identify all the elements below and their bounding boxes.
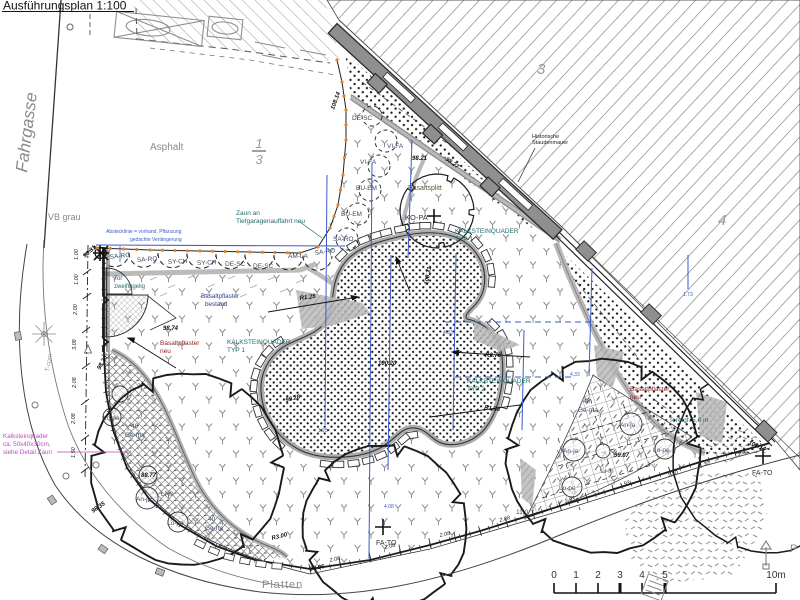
svg-text:SA-RO: SA-RO	[333, 236, 354, 243]
svg-text:4: 4	[718, 212, 726, 229]
svg-text:neu: neu	[160, 348, 171, 355]
svg-text:1.50: 1.50	[71, 446, 77, 458]
svg-text:zweiflügelig: zweiflügelig	[114, 284, 145, 290]
svg-text:TYP 2: TYP 2	[467, 386, 485, 393]
svg-text:ca. 50x40x30cm,: ca. 50x40x30cm,	[3, 441, 51, 448]
svg-text:BU-EM: BU-EM	[341, 211, 362, 218]
svg-text:VI-FA: VI-FA	[387, 143, 404, 150]
svg-text:Basaltpflaster: Basaltpflaster	[201, 293, 239, 300]
svg-text:KALKSTEINQUADER: KALKSTEINQUADER	[467, 378, 531, 385]
svg-text:Li-m: Li-m	[161, 491, 174, 498]
svg-text:2.08: 2.08	[72, 376, 78, 389]
svg-text:neu: neu	[630, 394, 641, 401]
svg-text:An-ja: An-ja	[136, 496, 152, 503]
svg-text:1.00: 1.00	[74, 248, 80, 260]
svg-text:5: 5	[662, 570, 668, 581]
svg-text:1.00: 1.00	[74, 273, 80, 285]
svg-text:VB grau: VB grau	[48, 212, 81, 222]
svg-text:Toreinf. 5,0 m: Toreinf. 5,0 m	[669, 417, 708, 424]
svg-text:0: 0	[551, 570, 557, 581]
svg-text:Ge-ma: Ge-ma	[578, 407, 598, 414]
svg-text:1: 1	[573, 570, 579, 581]
svg-text:1.73: 1.73	[683, 292, 693, 298]
svg-text:Basaltpflaster: Basaltpflaster	[630, 386, 670, 393]
svg-text:KALKSTEINQUADER: KALKSTEINQUADER	[455, 228, 519, 235]
svg-text:Zaun an: Zaun an	[236, 210, 260, 217]
svg-text:gedachte Verlängerung: gedachte Verlängerung	[130, 237, 182, 243]
svg-text:An-ja: An-ja	[563, 448, 579, 455]
svg-text:4: 4	[639, 570, 645, 581]
svg-text:98,74: 98,74	[163, 326, 179, 332]
svg-text:VI-FA: VI-FA	[360, 159, 377, 166]
svg-text:An-ja: An-ja	[620, 422, 636, 429]
svg-text:99.87: 99.87	[614, 453, 630, 459]
svg-text:TYP 1: TYP 1	[455, 236, 473, 243]
svg-text:BU-EM: BU-EM	[356, 185, 377, 192]
svg-text:Tiefgaragenauffahrt neu: Tiefgaragenauffahrt neu	[236, 218, 305, 225]
svg-text:4.33: 4.33	[570, 372, 580, 378]
svg-text:siehe Detail Zaun: siehe Detail Zaun	[3, 449, 53, 456]
svg-text:DE-SC: DE-SC	[225, 261, 246, 268]
svg-text:SA-RO: SA-RO	[137, 256, 158, 264]
svg-text:2: 2	[595, 570, 601, 581]
svg-text:Asphalt: Asphalt	[150, 142, 184, 153]
svg-text:FA-TO: FA-TO	[752, 470, 773, 477]
svg-text:2.08: 2.08	[71, 412, 77, 425]
svg-text:R2.76: R2.76	[485, 353, 502, 359]
svg-text:Lo-pe: Lo-pe	[653, 447, 670, 454]
svg-text:DE-SC: DE-SC	[253, 263, 274, 270]
svg-text:3: 3	[537, 61, 546, 78]
svg-text:KALKSTEINQUADER: KALKSTEINQUADER	[227, 339, 291, 346]
svg-text:Basaltpflaster: Basaltpflaster	[160, 340, 200, 347]
svg-text:Lo-pe: Lo-pe	[559, 485, 576, 492]
svg-text:AM-LA: AM-LA	[288, 253, 309, 260]
svg-text:Ge-ma: Ge-ma	[125, 432, 145, 439]
svg-text:1: 1	[255, 136, 262, 151]
svg-text:100.20: 100.20	[378, 361, 397, 367]
svg-text:Platten: Platten	[262, 579, 303, 591]
svg-text:3: 3	[255, 152, 263, 167]
svg-text:10m: 10m	[766, 570, 785, 581]
svg-text:TYP 1: TYP 1	[227, 347, 245, 354]
svg-text:Basaltsplitt: Basaltsplitt	[408, 185, 442, 192]
svg-text:P: P	[790, 543, 797, 555]
svg-text:4.08: 4.08	[384, 504, 394, 510]
svg-text:Li-m: Li-m	[601, 468, 614, 475]
svg-text:3.08: 3.08	[72, 338, 78, 350]
svg-text:Lo-pe: Lo-pe	[103, 415, 120, 422]
svg-text:1.25: 1.25	[318, 428, 328, 434]
svg-text:98.21: 98.21	[412, 156, 428, 162]
svg-text:4.33: 4.33	[443, 330, 453, 336]
svg-text:Lo-pe: Lo-pe	[167, 520, 184, 527]
svg-text:2.00: 2.00	[73, 303, 79, 316]
svg-text:40: 40	[583, 398, 591, 405]
svg-text:Ge-ha: Ge-ha	[205, 525, 223, 532]
svg-text:88.77: 88.77	[141, 473, 157, 479]
svg-text:Kalksteinquader: Kalksteinquader	[3, 433, 48, 440]
svg-text:40: 40	[131, 423, 139, 430]
svg-text:SY-CH: SY-CH	[197, 259, 217, 267]
svg-text:bestand: bestand	[205, 301, 228, 308]
svg-text:3: 3	[617, 570, 623, 581]
svg-text:Ausführungsplan 1:100: Ausführungsplan 1:100	[3, 0, 127, 13]
svg-text:Tor: Tor	[114, 276, 122, 282]
svg-text:SY-CH: SY-CH	[168, 258, 188, 266]
svg-text:11.0: 11.0	[516, 509, 529, 516]
svg-text:40: 40	[208, 516, 216, 523]
svg-text:DE-SC: DE-SC	[352, 115, 373, 122]
svg-text:Staudenmauer: Staudenmauer	[532, 140, 568, 146]
svg-text:KO-PA: KO-PA	[405, 213, 428, 222]
svg-text:Abstecklinie = vorhand. Pflanz: Abstecklinie = vorhand. Pflanzung	[106, 229, 182, 235]
